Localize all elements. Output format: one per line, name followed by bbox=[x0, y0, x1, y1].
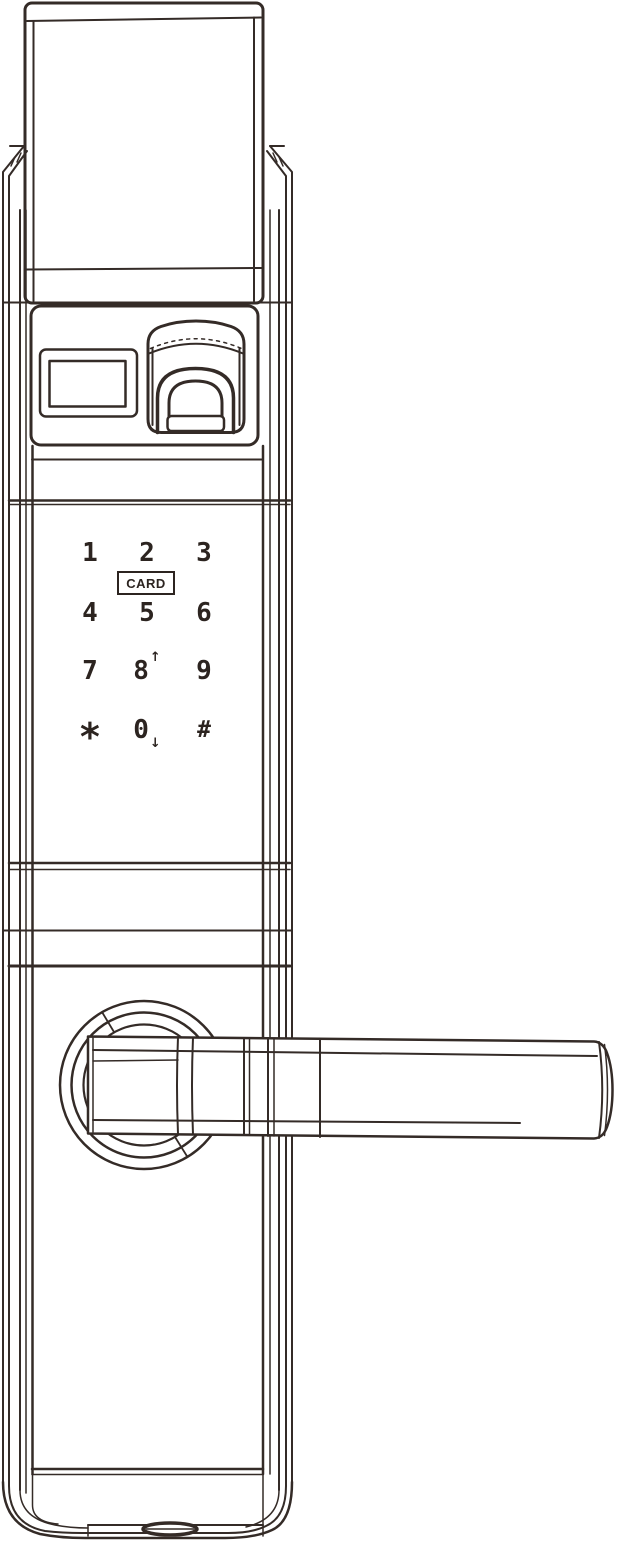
door-lock-drawing: 1 2 3 CARD 4 5 6 7 8↑ 9 * 0↓ # bbox=[0, 0, 617, 1541]
key-label: 3 bbox=[196, 540, 212, 566]
card-label-text: CARD bbox=[126, 576, 166, 591]
key-label: 2 bbox=[139, 540, 155, 566]
key-label: 8 bbox=[133, 658, 149, 684]
scroll-down-icon: ↓ bbox=[150, 737, 161, 750]
keypad-key-9[interactable]: 9 bbox=[181, 652, 227, 690]
keypad-key-5[interactable]: 5 bbox=[124, 594, 170, 632]
key-label: 6 bbox=[196, 600, 212, 626]
fingerprint-reader[interactable] bbox=[148, 321, 244, 433]
key-label: # bbox=[197, 719, 211, 742]
key-label: * bbox=[79, 718, 102, 756]
key-label: 4 bbox=[82, 600, 98, 626]
keypad-key-0[interactable]: 0↓ bbox=[124, 711, 170, 749]
keypad-key-4[interactable]: 4 bbox=[67, 594, 113, 632]
card-reader-label[interactable]: CARD bbox=[117, 571, 175, 595]
battery-cover bbox=[25, 3, 263, 303]
keypad-key-8[interactable]: 8↑ bbox=[124, 652, 170, 690]
keypad-key-hash[interactable]: # bbox=[181, 711, 227, 749]
key-label: 7 bbox=[82, 658, 98, 684]
keypad-key-7[interactable]: 7 bbox=[67, 652, 113, 690]
lock-line-art bbox=[0, 0, 617, 1541]
key-label: 1 bbox=[82, 540, 98, 566]
bottom-port bbox=[143, 1523, 197, 1535]
keypad-key-star[interactable]: * bbox=[67, 711, 113, 749]
keypad-key-1[interactable]: 1 bbox=[67, 534, 113, 572]
key-label: 0 bbox=[133, 717, 149, 743]
key-label: 9 bbox=[196, 658, 212, 684]
key-label: 5 bbox=[139, 600, 155, 626]
keypad-key-2[interactable]: 2 bbox=[124, 534, 170, 572]
display-window bbox=[40, 350, 137, 417]
keypad-key-3[interactable]: 3 bbox=[181, 534, 227, 572]
handle-lever[interactable] bbox=[88, 1037, 613, 1139]
keypad-key-6[interactable]: 6 bbox=[181, 594, 227, 632]
scroll-up-icon: ↑ bbox=[150, 651, 161, 664]
